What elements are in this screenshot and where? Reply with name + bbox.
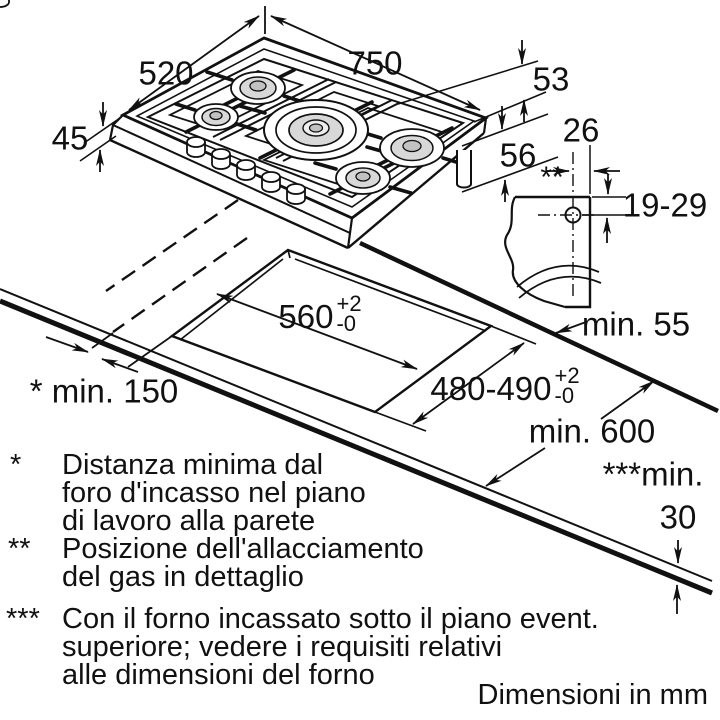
- cutout-width-value: 560: [278, 300, 333, 333]
- burner-wok-center: [264, 100, 368, 160]
- footnote-2-line-1: Posizione dell'allacciamento: [62, 535, 424, 564]
- units-note: Dimensioni in mm: [478, 679, 708, 712]
- burner-left: [194, 104, 238, 130]
- dim-19-29-label: 19-29: [623, 189, 707, 222]
- footnote-3-marker: ***: [6, 605, 40, 634]
- min-30-prefix-label: ***min.: [603, 458, 704, 491]
- footnote-1-line-3: di lavoro alla parete: [62, 507, 315, 536]
- dim-520-label: 520: [138, 57, 193, 90]
- cutout-depth-label: 480-490 +2 -0: [430, 368, 579, 408]
- footnote-2-marker: **: [8, 535, 31, 564]
- min-600-label: min. 600: [529, 415, 656, 448]
- min-30-value-label: 30: [660, 501, 697, 534]
- wall-dashed-line: [113, 238, 247, 332]
- cutout-depth-tol-minus: -0: [555, 386, 580, 406]
- min-600-arrow-front: [486, 448, 545, 486]
- control-knob: [187, 137, 205, 157]
- cutout-width-label: 560 +2 -0: [278, 296, 361, 336]
- footnote-3-line-1: Con il forno incassato sotto il piano ev…: [62, 605, 599, 634]
- footnote-1-marker: *: [10, 451, 21, 480]
- burner-right: [380, 129, 444, 167]
- gas-marker-label: **: [540, 163, 563, 193]
- gas-inlet-pipe: [457, 150, 471, 188]
- footnote-1-line-2: foro d'incasso nel piano: [62, 479, 366, 508]
- wall-dashed-line-2: [106, 200, 238, 291]
- cutout-width-tol-minus: -0: [336, 314, 361, 334]
- dim-26-label: 26: [563, 114, 600, 147]
- installation-diagram: 520 750 45 53 56 26 ** 19-29 560 +2 -0 4…: [0, 0, 720, 720]
- burner-front-center: [336, 162, 390, 194]
- min-150-label: * min. 150: [30, 375, 179, 408]
- burner-back-left: [231, 72, 285, 104]
- dim-56-label: 56: [500, 139, 537, 172]
- footnote-2-line-2: del gas in dettaglio: [62, 563, 304, 592]
- dim-53-label: 53: [533, 63, 570, 96]
- footnote-3-line-3: alle dimensioni del forno: [62, 661, 375, 690]
- footnote-3-line-2: superiore; vedere i requisiti relativi: [62, 633, 502, 662]
- footnote-1-line-1: Distanza minima dal: [62, 451, 323, 480]
- break-line: [517, 266, 599, 287]
- dim-750-label: 750: [347, 47, 402, 80]
- min-55-label: min. 55: [582, 308, 690, 341]
- dim-45-label: 45: [52, 122, 89, 155]
- cutout-depth-value: 480-490: [430, 372, 551, 405]
